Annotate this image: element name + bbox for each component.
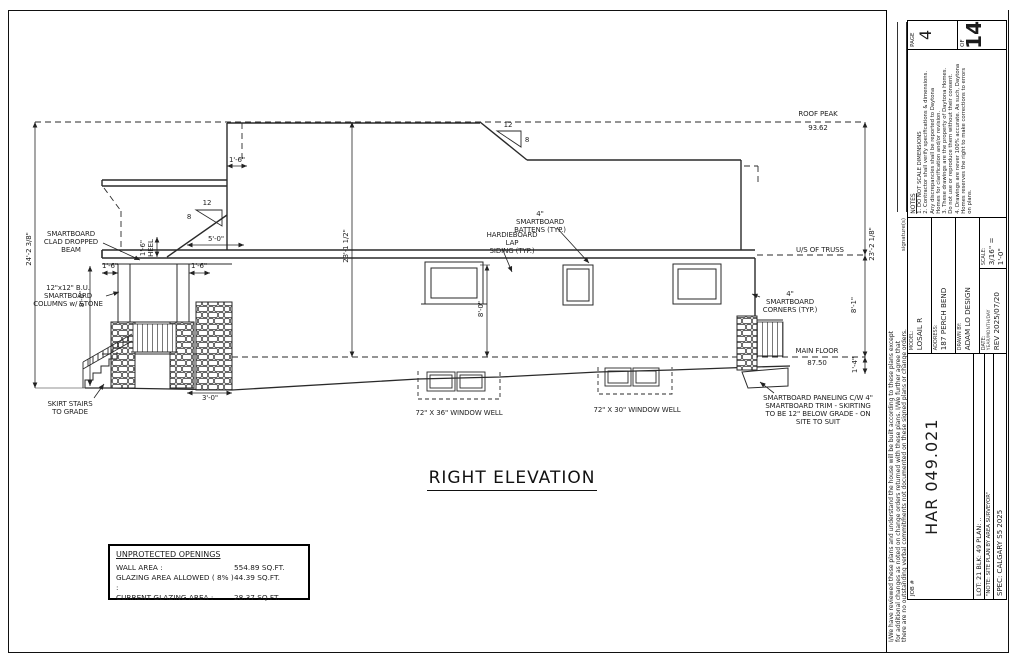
dim-porch-height-label: 8'-0" bbox=[78, 284, 86, 314]
notes-title: NOTES bbox=[910, 53, 917, 214]
openings-title: UNPROTECTED OPENINGS bbox=[116, 550, 302, 559]
deck-railing bbox=[757, 322, 783, 356]
date-scale-cell: DATE: YEAR/MONTH/DAY REV 2025/07/20 SCAL… bbox=[980, 218, 1006, 354]
pitch-rise-lower: 12 bbox=[197, 199, 217, 207]
scale-cell: SCALE: 3/16" = 1'-0" bbox=[980, 218, 1006, 270]
date-cell: DATE: YEAR/MONTH/DAY REV 2025/07/20 bbox=[980, 269, 1006, 353]
pitch-run-upper: 8 bbox=[520, 136, 534, 144]
callout-beam: SMARTBOARD CLAD DROPPED BEAM bbox=[40, 230, 102, 254]
signature-line bbox=[889, 22, 898, 212]
job-section: JOB # HAR 049.021 LOT: 21 BLK: 49 PLAN: … bbox=[908, 353, 1006, 599]
spec-row: SPEC: CALGARY S5 2025 bbox=[994, 354, 1006, 599]
of-cell: OF 14 bbox=[958, 21, 1007, 49]
table-row: CURRENT GLAZING AREA : 28.37 SQ.FT. bbox=[116, 593, 302, 603]
stone-wall bbox=[196, 302, 232, 390]
dim-5-0-label: 5'-0" bbox=[196, 235, 236, 243]
signature-line bbox=[898, 22, 907, 212]
row-label: GLAZING AREA ALLOWED ( 8% ) : bbox=[116, 573, 234, 593]
page-number: 4 bbox=[916, 21, 935, 49]
drawn-by-value: ADAM LO DESIGN bbox=[963, 221, 972, 351]
pitch-rise-upper: 12 bbox=[498, 121, 518, 129]
job-label: JOB # bbox=[910, 580, 916, 596]
site-note: "NOTE: SITE PLAN BY AREA SURVEYOR" bbox=[985, 354, 994, 599]
title-block-top-row: I/We have reviewed these plans and under… bbox=[887, 10, 907, 652]
window-wells bbox=[418, 367, 672, 399]
dim-1-6-right-label: 1'-6" bbox=[184, 262, 214, 270]
notes-section: NOTES 1. DO NOT SCALE DIMENSIONS 2. Cont… bbox=[908, 49, 1006, 217]
dim-3-0-label: 3'-0" bbox=[190, 394, 230, 402]
callout-corners: 4" SMARTBOARD CORNERS (TYP.) bbox=[762, 290, 818, 314]
window-well-right-label: 72" X 30" WINDOW WELL bbox=[578, 406, 696, 414]
dim-heel-label: 1'-6" HEEL bbox=[139, 232, 155, 264]
pitch-markers bbox=[196, 131, 521, 226]
stone-pier bbox=[737, 316, 757, 370]
table-row: WALL AREA : 554.89 SQ.FT. bbox=[116, 563, 302, 573]
main-floor-value: 87.50 bbox=[792, 359, 842, 367]
table-row: GLAZING AREA ALLOWED ( 8% ) : 44.39 SQ.F… bbox=[116, 573, 302, 593]
skirt-panel bbox=[742, 368, 788, 388]
porch-railing bbox=[133, 324, 176, 352]
unprotected-openings-table: UNPROTECTED OPENINGS WALL AREA : 554.89 … bbox=[108, 544, 310, 600]
signature-label: signature(s) bbox=[901, 218, 907, 251]
row-label: CURRENT GLAZING AREA : bbox=[116, 593, 234, 603]
scale-value: 3/16" = 1'-0" bbox=[987, 221, 1005, 266]
porch-roof bbox=[102, 180, 227, 186]
pitch-triangle-lower bbox=[196, 210, 222, 226]
main-windows bbox=[421, 262, 721, 305]
main-floor-label: MAIN FLOOR bbox=[792, 347, 842, 355]
address-cell: ADDRESS: 187 PERCH BEND bbox=[932, 218, 956, 354]
page-section: PAGE 4 OF 14 bbox=[908, 21, 1006, 49]
pitch-run-lower: 8 bbox=[182, 213, 196, 221]
drawing-title-text: RIGHT ELEVATION bbox=[427, 468, 598, 491]
of-label: OF bbox=[960, 39, 966, 47]
job-number: HAR 049.021 bbox=[922, 354, 941, 599]
dim-right-total-label: 23'-2 1/8" bbox=[868, 224, 876, 264]
lot-row: LOT: 21 BLK: 49 PLAN: .. bbox=[974, 354, 985, 599]
callout-siding: HARDIEBOARD LAP SIDING (TYP.) bbox=[482, 231, 542, 255]
fascia-band bbox=[102, 250, 755, 258]
dim-1-6-top-label: 1'-6" bbox=[222, 156, 252, 164]
window-well-left-label: 72" X 36" WINDOW WELL bbox=[400, 409, 518, 417]
job-number-cell: JOB # HAR 049.021 bbox=[908, 354, 974, 599]
porch bbox=[83, 264, 232, 390]
info-section: MODEL: LOSAIL R ADDRESS: 187 PERCH BEND … bbox=[908, 217, 1006, 354]
page-cell: PAGE 4 bbox=[908, 21, 958, 49]
dim-1-6-left-label: 1'-6" bbox=[95, 262, 125, 270]
dim-mid-label: 23'-1 1/2" bbox=[342, 226, 350, 266]
dim-below-floor-label: 1'-4" bbox=[851, 350, 859, 380]
notes-body: 1. DO NOT SCALE DIMENSIONS 2. Contractor… bbox=[917, 53, 973, 214]
stone-pedestal-left bbox=[111, 322, 135, 388]
column-right bbox=[175, 264, 191, 322]
title-block-grid: JOB # HAR 049.021 LOT: 21 BLK: 49 PLAN: … bbox=[907, 20, 1007, 600]
us-truss-label: U/S OF TRUSS bbox=[796, 246, 860, 254]
model-value: LOSAIL R bbox=[915, 221, 924, 351]
row-value: 44.39 SQ.FT. bbox=[234, 573, 280, 593]
page-label: PAGE bbox=[910, 32, 916, 46]
roof-peak-value: 93.62 bbox=[792, 124, 844, 132]
row-value: 554.89 SQ.FT. bbox=[234, 563, 285, 573]
signature-area: signature(s) bbox=[887, 10, 907, 251]
drawn-by-cell: DRAWN BY: ADAM LO DESIGN bbox=[956, 218, 980, 354]
drawing-sheet: ROOF PEAK 93.62 U/S OF TRUSS MAIN FLOOR … bbox=[0, 0, 1024, 662]
right-deck bbox=[737, 316, 788, 388]
address-value: 187 PERCH BEND bbox=[939, 221, 948, 351]
callout-columns: 12"x12" B.U. SMARTBOARD COLUMNS w/ STONE bbox=[30, 284, 106, 308]
row-label: WALL AREA : bbox=[116, 563, 234, 573]
date-value: REV 2025/07/20 bbox=[992, 272, 1001, 350]
column-left bbox=[116, 264, 132, 322]
window-3 bbox=[673, 264, 721, 304]
dim-overall-left-label: 24'-2 3/8" bbox=[25, 224, 33, 274]
dim-window-height-label: 8'-0" bbox=[477, 294, 485, 324]
callout-skirt-stairs: SKIRT STAIRS TO GRADE bbox=[40, 400, 100, 416]
dim-wall-height-label: 8'-1" bbox=[850, 290, 858, 320]
roof-peak-label: ROOF PEAK bbox=[792, 110, 844, 118]
title-block: I/We have reviewed these plans and under… bbox=[886, 10, 1008, 652]
row-value: 28.37 SQ.FT. bbox=[234, 593, 280, 603]
callout-paneling: SMARTBOARD PANELING C/W 4" SMARTBOARD TR… bbox=[756, 394, 880, 426]
drawing-title: RIGHT ELEVATION bbox=[402, 468, 622, 488]
model-cell: MODEL: LOSAIL R bbox=[908, 218, 932, 354]
disclaimer-text: I/We have reviewed these plans and under… bbox=[887, 251, 909, 652]
